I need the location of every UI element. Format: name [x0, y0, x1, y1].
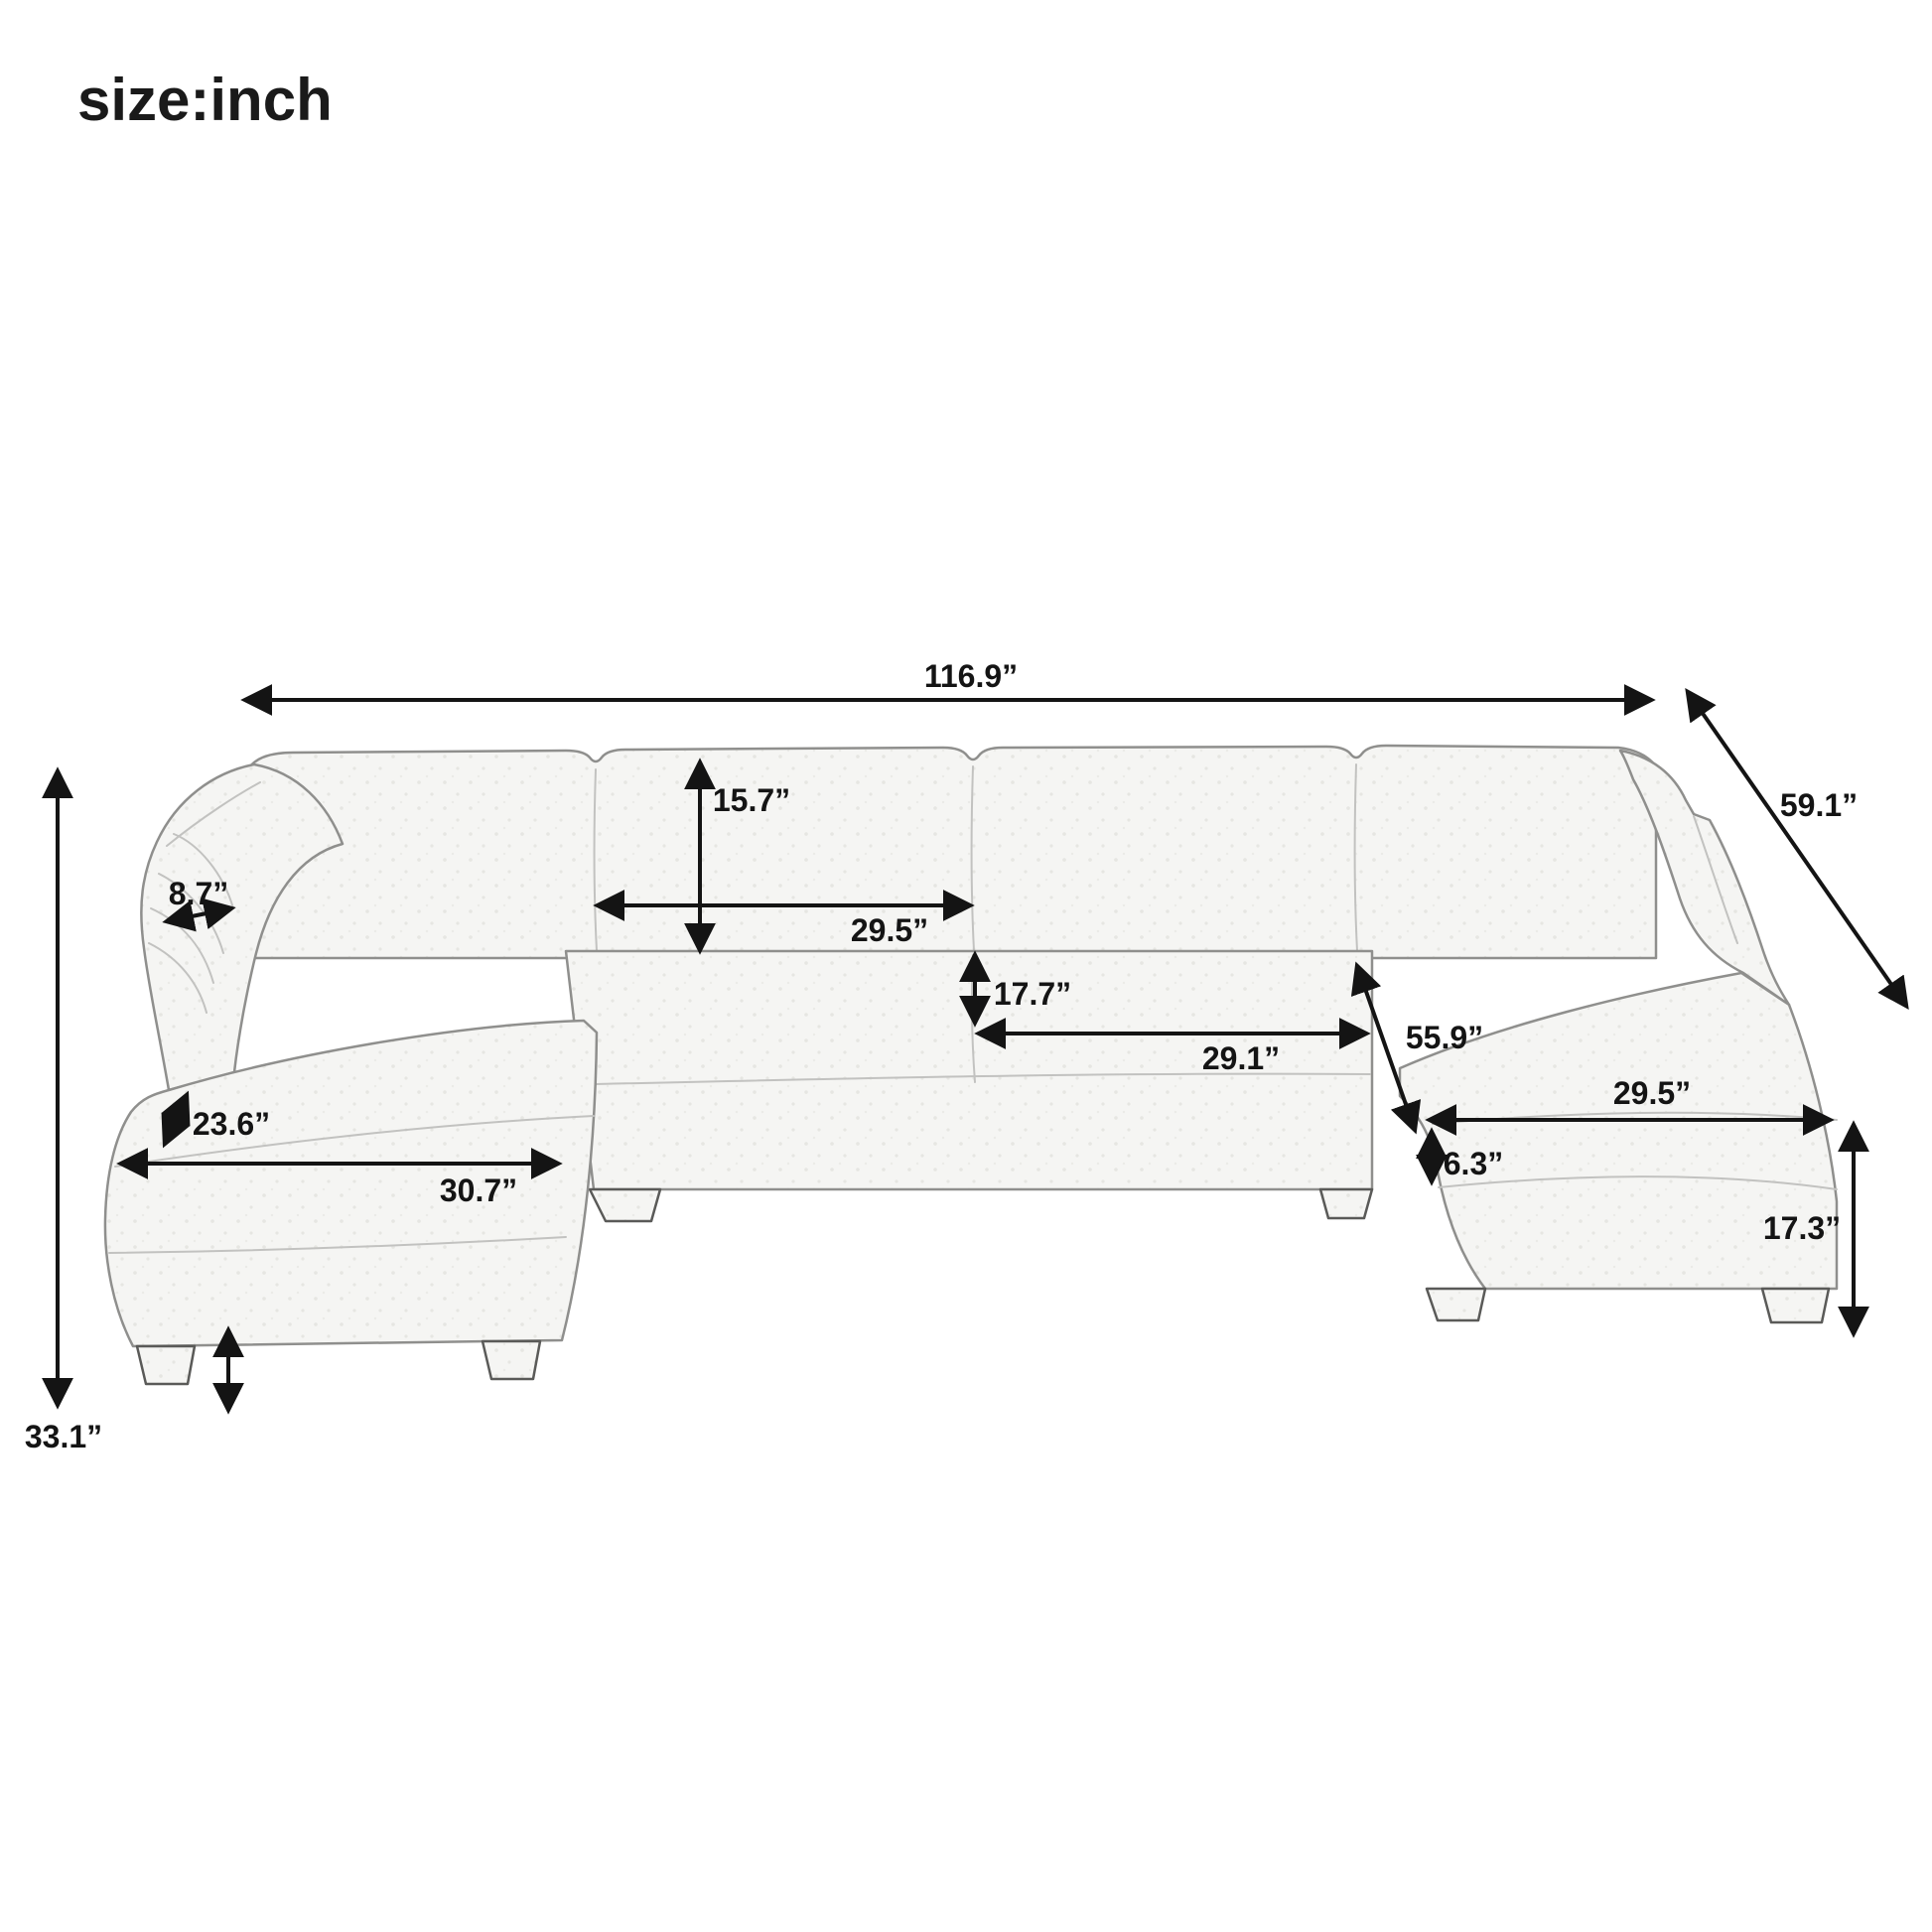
dim-label-chaise-seat-height: 17.3”: [1763, 1210, 1841, 1246]
dim-label-overall-height: 33.1”: [25, 1419, 102, 1454]
sofa-dimension-page: 116.9” 59.1” 33.1” 15.7” 29.5” 17.7” 29.…: [0, 0, 1932, 1932]
dim-label-left-chaise-depth: 23.6”: [193, 1106, 270, 1142]
sofa-drawing: [105, 746, 1837, 1384]
dim-label-armrest-width: 8.7”: [169, 876, 228, 911]
sofa-leg: [590, 1189, 660, 1221]
sofa-leg: [1320, 1189, 1372, 1218]
dim-label-chaise-cushion-width: 29.5”: [1613, 1075, 1691, 1111]
sofa-back-cushions: [250, 746, 1656, 958]
dim-label-overall-width: 116.9”: [924, 658, 1018, 694]
sofa-leg: [137, 1346, 195, 1384]
dim-label-left-chaise-width: 30.7”: [440, 1173, 517, 1208]
dim-label-seat-cushion-thickness: 6.3”: [1444, 1146, 1503, 1181]
dim-label-back-cushion-height: 15.7”: [713, 782, 790, 818]
sofa-leg: [1762, 1289, 1829, 1322]
sofa-leg: [1427, 1289, 1485, 1320]
dim-label-seat-back-height: 17.7”: [994, 976, 1071, 1012]
dimension-diagram: 116.9” 59.1” 33.1” 15.7” 29.5” 17.7” 29.…: [0, 0, 1932, 1932]
dim-label-back-cushion-width: 29.5”: [851, 912, 928, 948]
dim-label-seat-cushion-width: 29.1”: [1202, 1040, 1280, 1076]
dim-label-overall-depth: 59.1”: [1780, 787, 1858, 823]
dim-label-interior-width: 55.9”: [1406, 1020, 1483, 1055]
sofa-leg: [483, 1341, 540, 1379]
page-title: size:inch: [77, 67, 333, 133]
